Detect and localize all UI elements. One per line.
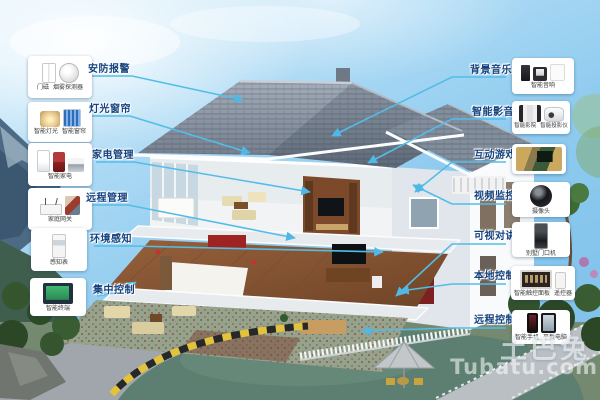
remote-control-icon <box>555 272 566 289</box>
label-light-curtain: 灯光窗帘 <box>89 100 131 115</box>
label-smart-av: 智能影音 <box>472 103 514 118</box>
door-sensor-icon <box>42 63 56 83</box>
product-caption: 烟雾探测器 <box>53 85 83 91</box>
label-security-alarm: 安防报警 <box>88 60 130 75</box>
product-caption: 智能灯光 <box>34 129 58 135</box>
thumbs-row <box>530 185 552 207</box>
card-appliance-products: 智能家电 <box>28 143 92 186</box>
label-local-control: 本地控制 <box>474 267 516 282</box>
touch-panel-icon <box>520 270 552 289</box>
card-local-control-products: 智能触控面板 遥控器 <box>511 266 575 300</box>
product-caption: 家庭网关 <box>48 217 72 223</box>
projector-icon <box>544 107 564 122</box>
product-caption: 智能家电 <box>48 174 72 180</box>
card-gateway-products: 家庭网关 <box>28 188 92 230</box>
thumbs-row <box>52 234 66 258</box>
product-caption: 别墅门口机 <box>526 251 556 257</box>
card-game-photo <box>512 144 566 174</box>
card-av-products: 智能影院 智能投影仪 <box>512 101 570 134</box>
product-caption: 智能投影仪 <box>540 124 568 130</box>
product-caption: 摄像头 <box>532 209 550 215</box>
audio-panel-icon <box>533 67 547 81</box>
thumbs-row <box>521 64 565 81</box>
card-security-products: 门磁 烟雾探测器 <box>28 56 92 98</box>
label-video-surveillance: 视频监控 <box>474 187 516 202</box>
water-heater-icon <box>37 150 50 172</box>
gateway-photo <box>65 196 80 215</box>
smart-home-infographic: 门磁 烟雾探测器 安防报警 智能灯光 智能窗帘 灯光窗帘 智能家电 家电管理 <box>0 0 600 400</box>
dome-camera-icon <box>530 185 552 207</box>
smoke-detector-icon <box>59 63 79 83</box>
label-remote-mgmt: 远程管理 <box>86 189 128 204</box>
product-caption: 智能触控面板 <box>514 291 550 297</box>
door-station-icon <box>534 223 548 249</box>
touch-terminal-icon <box>43 283 73 304</box>
label-central-control: 集中控制 <box>93 281 135 296</box>
thumbs-row <box>519 105 564 122</box>
smart-light-icon <box>40 111 60 127</box>
sensor-meter-icon <box>52 234 66 258</box>
smart-curtain-icon <box>63 109 81 127</box>
fridge-icon <box>53 152 65 172</box>
audio-pad-icon <box>550 64 565 81</box>
product-caption: 遥控器 <box>554 291 572 297</box>
router-icon <box>40 204 62 215</box>
product-caption: 门磁 <box>37 85 49 91</box>
product-caption: 智能音响 <box>531 83 555 89</box>
thumbs-row <box>534 223 548 249</box>
thumbs-row <box>42 63 79 83</box>
thumbs-row <box>40 196 80 215</box>
label-appliance-mgmt: 家电管理 <box>92 146 134 161</box>
card-sensor-products: 感知表 <box>31 228 87 271</box>
label-background-music: 背景音乐 <box>470 61 512 76</box>
thumbs-row <box>40 109 81 127</box>
range-hood-icon <box>68 158 84 172</box>
product-caption: 智能终端 <box>46 306 70 312</box>
thumbs-row <box>37 150 84 172</box>
card-lighting-products: 智能灯光 智能窗帘 <box>28 102 92 142</box>
watermark-site: Tubatu.com <box>450 355 598 379</box>
thumbs-row <box>520 270 566 289</box>
game-photo-image <box>516 147 562 171</box>
card-terminal-products: 智能终端 <box>30 278 86 316</box>
amplifier-icon <box>521 65 530 81</box>
card-audio-products: 智能音响 <box>512 58 574 94</box>
label-video-intercom: 可视对讲 <box>474 227 516 242</box>
card-camera-products: 摄像头 <box>512 182 570 217</box>
thumbs-row <box>43 283 73 304</box>
label-remote-control: 远程控制 <box>474 311 516 326</box>
label-interactive-game: 互动游戏 <box>474 146 516 161</box>
background-trees <box>572 94 600 178</box>
product-caption: 感知表 <box>50 260 68 266</box>
home-cinema-icon <box>519 105 541 122</box>
label-environment-sense: 环境感知 <box>90 230 132 245</box>
product-caption: 智能影院 <box>514 124 536 130</box>
product-caption: 智能窗帘 <box>62 129 86 135</box>
card-intercom-products: 别墅门口机 <box>512 222 570 257</box>
